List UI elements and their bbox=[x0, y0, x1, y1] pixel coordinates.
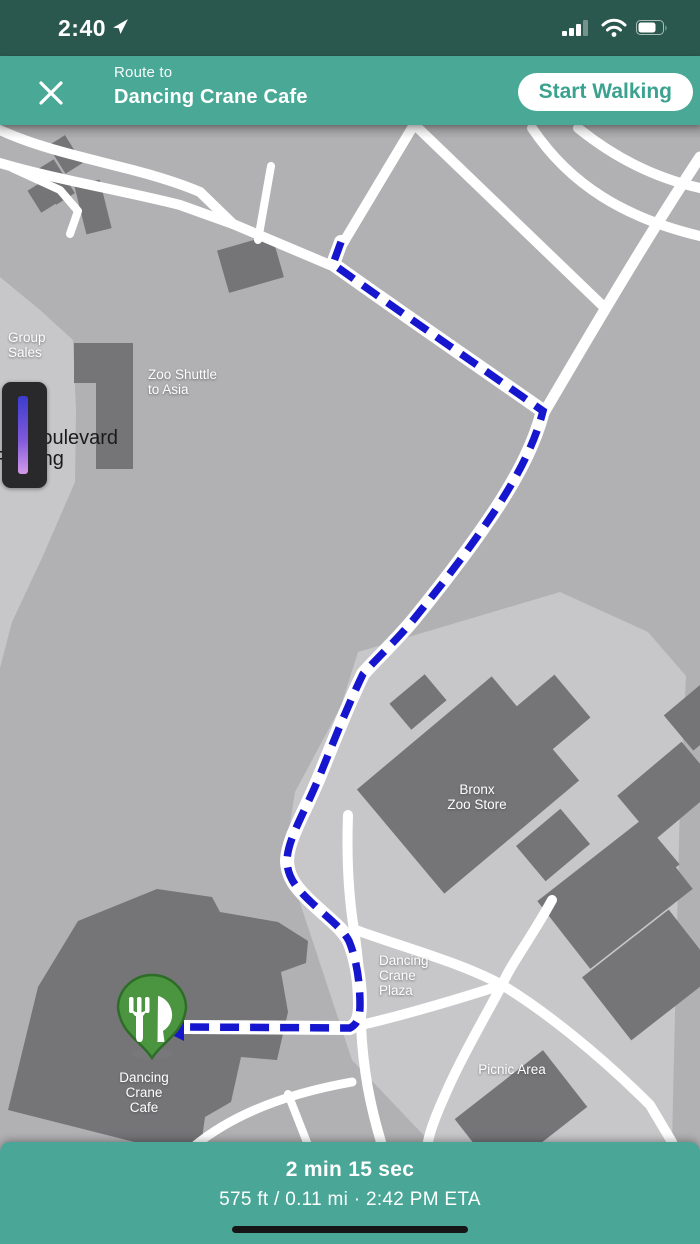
route-details: 575 ft / 0.11 mi · 2:42 PM ETA bbox=[0, 1189, 700, 1211]
start-walking-button[interactable]: Start Walking bbox=[518, 73, 693, 111]
close-icon bbox=[41, 83, 61, 103]
home-indicator[interactable] bbox=[232, 1226, 468, 1233]
route-duration: 2 min 15 sec bbox=[0, 1158, 700, 1182]
status-bar: 2:40 bbox=[0, 0, 700, 56]
map-label-zoo-shuttle: Zoo Shuttle to Asia bbox=[148, 367, 217, 397]
close-button[interactable] bbox=[36, 78, 66, 108]
map-label-group-sales: Group Sales bbox=[8, 330, 46, 360]
signal-icon bbox=[562, 18, 592, 38]
header-title: Dancing Crane Cafe bbox=[114, 86, 308, 109]
battery-icon bbox=[636, 20, 668, 36]
map-label-dancing-crane-cafe: Dancing Crane Cafe bbox=[119, 1070, 169, 1115]
map-label-dancing-crane-plaza: Dancing Crane Plaza bbox=[379, 953, 429, 998]
route-header: Route to Dancing Crane Cafe Start Walkin… bbox=[0, 56, 700, 125]
route-summary-footer: 2 min 15 sec 575 ft / 0.11 mi · 2:42 PM … bbox=[0, 1142, 700, 1244]
screen: Group Sales Zoo Shuttle to Asia Boulevar… bbox=[0, 0, 700, 1244]
map-overlay-widget[interactable] bbox=[2, 382, 47, 488]
status-time: 2:40 bbox=[58, 15, 106, 42]
map-label-picnic-area: Picnic Area bbox=[478, 1062, 546, 1077]
map-label-bronx-zoo-store: Bronx Zoo Store bbox=[447, 782, 506, 812]
location-arrow-icon bbox=[112, 18, 129, 40]
map-graphics bbox=[0, 0, 700, 1244]
wifi-icon bbox=[601, 18, 627, 38]
map-canvas[interactable]: Group Sales Zoo Shuttle to Asia Boulevar… bbox=[0, 0, 700, 1244]
header-shadow bbox=[0, 125, 700, 139]
gradient-bar bbox=[18, 396, 28, 474]
header-subtitle: Route to bbox=[114, 64, 308, 81]
